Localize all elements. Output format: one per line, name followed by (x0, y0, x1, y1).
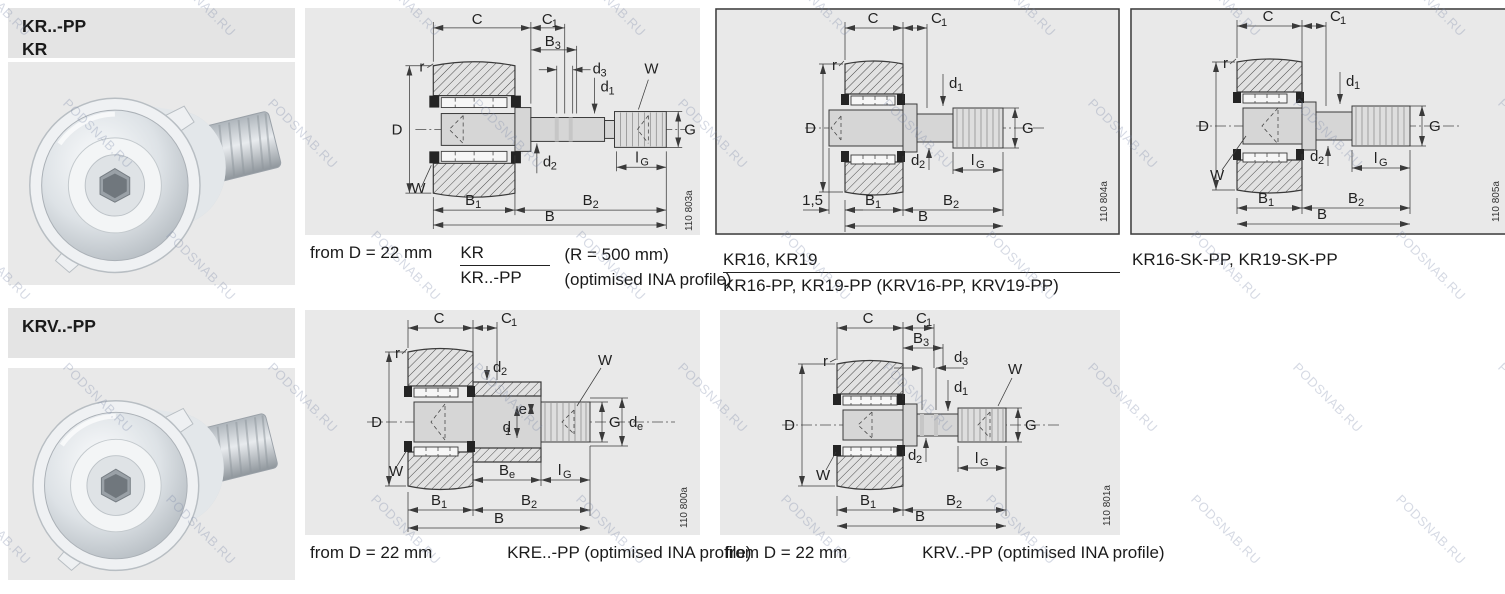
dim-label-b1-sub: 1 (1268, 197, 1274, 209)
dim-label-d1-sub: 1 (609, 86, 615, 98)
dim-label-b3: B (913, 330, 923, 347)
dim-label-b: B (918, 208, 928, 225)
dim-label-b2: B (1348, 190, 1358, 207)
dim-label-c: C (863, 310, 874, 327)
dim-label-b1-sub: 1 (475, 199, 481, 211)
dim-label-d2-sub: 2 (1318, 155, 1324, 167)
figure-number-kre: 110 800a (679, 487, 690, 528)
dim-label-c: C (472, 11, 483, 28)
dim-label-b1: B (465, 192, 475, 209)
drawing-panel-kr16: C C 1 r D d 1 d 2 G l G 1,5 B 1 B 2 B 11… (715, 8, 1120, 235)
caption-kr16-line2: KR16-PP, KR19-PP (KRV16-PP, KRV19-PP) (723, 273, 1120, 296)
dim-label-w-bottom: W (816, 467, 831, 484)
dim-label-d: D (1198, 118, 1209, 135)
dim-label-b2: B (943, 192, 953, 209)
dim-label-c1-sub: 1 (1340, 15, 1346, 27)
dim-label-b: B (494, 510, 504, 527)
caption-kr-note-bottom: (optimised INA profile) (564, 268, 731, 293)
dim-label-w-top: W (644, 61, 659, 78)
dim-label-g: G (609, 414, 621, 431)
caption-kr-frac-top: KR (460, 243, 550, 266)
caption-kr: from D = 22 mm KR KR..-PP (R = 500 mm) (… (310, 243, 732, 292)
dim-label-lg-sub: G (563, 469, 572, 481)
dim-label-lg: l (971, 152, 974, 169)
dim-label-d1-sub: 1 (1354, 80, 1360, 92)
dim-label-lg-sub: G (1379, 157, 1388, 169)
dim-label-d2-sub: 2 (919, 159, 925, 171)
dim-label-d2-sub: 2 (501, 366, 507, 378)
drawing-panel-kr16sk: C C 1 r D d 1 W d 2 G l G B 1 B 2 B 110 … (1130, 8, 1505, 235)
caption-kr-fraction: KR KR..-PP (460, 243, 550, 288)
krv-bearing-photo (8, 368, 295, 580)
kr16sk-drawing: C C 1 r D d 1 W d 2 G l G B 1 B 2 B 110 … (1130, 8, 1505, 235)
dim-label-b: B (915, 508, 925, 525)
dim-label-d2-sub: 2 (916, 454, 922, 466)
dim-label-d1-sub: 1 (505, 426, 511, 438)
dim-label-b1: B (865, 192, 875, 209)
figure-number-kr16sk: 110 805a (1491, 181, 1502, 222)
dim-label-d: D (805, 120, 816, 137)
dim-label-r: r (395, 345, 400, 362)
dim-label-r: r (832, 57, 837, 74)
bearing-section (415, 62, 686, 197)
dim-label-b2: B (946, 492, 956, 509)
dim-label-r: r (1223, 55, 1228, 72)
dim-label-b2-sub: 2 (953, 199, 959, 211)
dim-label-b2-sub: 2 (956, 499, 962, 511)
dim-label-d: D (371, 414, 382, 431)
dim-label-d: D (784, 417, 795, 434)
photo-kr-panel (8, 62, 295, 285)
dim-label-b3: B (545, 33, 555, 50)
caption-krv: from D = 22 mm KRV..-PP (optimised INA p… (725, 543, 1165, 563)
krv-drawing: C C 1 B 3 d 3 d 1 r D W G W d 2 l G B 1 … (720, 310, 1120, 535)
kre-drawing: C C 1 r D d 2 e d 1 W G d e W B e l G B … (305, 310, 700, 535)
caption-kre-label: KRE..-PP (optimised INA profile) (507, 543, 751, 562)
caption-kr16sk: KR16-SK-PP, KR19-SK-PP (1132, 250, 1338, 270)
dim-label-de-sub: e (637, 421, 643, 433)
dim-label-b3-sub: 3 (555, 40, 561, 52)
dim-label-b1-sub: 1 (441, 499, 447, 511)
dim-label-lg-sub: G (980, 457, 989, 469)
caption-krv-prefix: from D = 22 mm (725, 543, 847, 562)
dim-label-lg: l (975, 450, 978, 467)
dim-label-b: B (545, 208, 555, 225)
dim-label-c1-sub: 1 (941, 17, 947, 29)
dim-label-w-top: W (1008, 361, 1023, 378)
dim-label-d3-sub: 3 (962, 356, 968, 368)
dim-label-g: G (1429, 118, 1441, 135)
caption-kr16: KR16, KR19 KR16-PP, KR19-PP (KRV16-PP, K… (723, 250, 1120, 296)
dim-label-lg-sub: G (976, 159, 985, 171)
caption-krv-label: KRV..-PP (optimised INA profile) (922, 543, 1165, 562)
dim-label-c1-sub: 1 (552, 18, 558, 30)
photo-krv-panel (8, 368, 295, 580)
caption-kre: from D = 22 mm KRE..-PP (optimised INA p… (310, 543, 751, 563)
series-title-krv-pp: KRV..-PP (22, 315, 295, 338)
dim-label-d2-sub: 2 (551, 160, 557, 172)
caption-kr-note-top: (R = 500 mm) (564, 243, 731, 268)
dim-label-w-bottom: W (389, 463, 404, 480)
caption-kr16-line1: KR16, KR19 (723, 250, 1120, 273)
dim-label-be: B (499, 462, 509, 479)
dim-label-b1: B (431, 492, 441, 509)
dim-label-r: r (823, 353, 828, 370)
dim-label-d1-sub: 1 (962, 386, 968, 398)
dim-label-w-bottom: W (411, 180, 426, 197)
dim-label-b1: B (860, 492, 870, 509)
drawing-panel-kre: C C 1 r D d 2 e d 1 W G d e W B e l G B … (305, 310, 700, 535)
watermark-text: PODSNAB.RU (1495, 360, 1505, 436)
dim-label-b2-sub: 2 (531, 499, 537, 511)
dim-label-r: r (419, 59, 424, 76)
figure-number-kr: 110 803a (684, 190, 695, 231)
dim-label-lg: l (1374, 150, 1377, 167)
dim-label-d: D (392, 121, 403, 138)
watermark-text: PODSNAB.RU (1393, 228, 1469, 304)
dim-label-b: B (1317, 206, 1327, 223)
dim-label-b1-sub: 1 (870, 499, 876, 511)
series-title-kr: KR (22, 38, 295, 61)
figure-number-krv: 110 801a (1102, 485, 1113, 526)
watermark-text: PODSNAB.RU (1290, 360, 1366, 436)
watermark-text: PODSNAB.RU (1393, 492, 1469, 568)
dim-label-c1-sub: 1 (926, 317, 932, 329)
dim-label-w-top: W (598, 352, 613, 369)
kr-drawing: C C 1 B 3 d 3 d 1 W r D G W d 2 l G B 1 … (305, 8, 700, 235)
dim-label-b3-sub: 3 (923, 337, 929, 349)
dim-label-b1-sub: 1 (875, 199, 881, 211)
series-header-krv: KRV..-PP (8, 308, 295, 358)
caption-kr-prefix: from D = 22 mm (310, 243, 432, 263)
dim-label-c: C (868, 10, 879, 27)
series-title-kr-pp: KR..-PP (22, 15, 295, 38)
caption-kr-notes: (R = 500 mm) (optimised INA profile) (564, 243, 731, 292)
dim-label-15: 1,5 (802, 192, 823, 209)
caption-kr-frac-bottom: KR..-PP (460, 266, 550, 288)
dim-label-b2-sub: 2 (1358, 197, 1364, 209)
dim-label-e: e (519, 401, 527, 418)
caption-kr16sk-line1: KR16-SK-PP, KR19-SK-PP (1132, 250, 1338, 269)
dim-label-b2-sub: 2 (593, 199, 599, 211)
series-header-kr: KR..-PP KR (8, 8, 295, 58)
figure-number-kr16: 110 804a (1099, 181, 1110, 222)
dim-label-g: G (1022, 120, 1034, 137)
dim-label-c: C (1263, 8, 1274, 25)
dim-label-lg-sub: G (640, 156, 649, 168)
kr-bearing-photo (8, 62, 295, 285)
dim-label-lg: l (558, 462, 561, 479)
dim-label-lg: l (635, 149, 638, 166)
dim-label-d1-sub: 1 (957, 82, 963, 94)
drawing-panel-kr: C C 1 B 3 d 3 d 1 W r D G W d 2 l G B 1 … (305, 8, 700, 235)
dim-label-b2: B (583, 192, 593, 209)
bearing-section (805, 61, 1045, 195)
drawing-panel-krv: C C 1 B 3 d 3 d 1 r D W G W d 2 l G B 1 … (720, 310, 1120, 535)
dim-label-c1-sub: 1 (511, 317, 517, 329)
dim-label-g: G (684, 121, 696, 138)
dim-label-b2: B (521, 492, 531, 509)
caption-kre-prefix: from D = 22 mm (310, 543, 432, 562)
watermark-text: PODSNAB.RU (1188, 492, 1264, 568)
dim-label-w: W (1210, 167, 1225, 184)
dim-label-be-sub: e (509, 469, 515, 481)
kr16-drawing: C C 1 r D d 1 d 2 G l G 1,5 B 1 B 2 B 11… (715, 8, 1120, 235)
dim-label-b1: B (1258, 190, 1268, 207)
bearing-section (1196, 59, 1460, 193)
dim-label-c: C (434, 310, 445, 327)
dim-label-g: G (1025, 417, 1037, 434)
